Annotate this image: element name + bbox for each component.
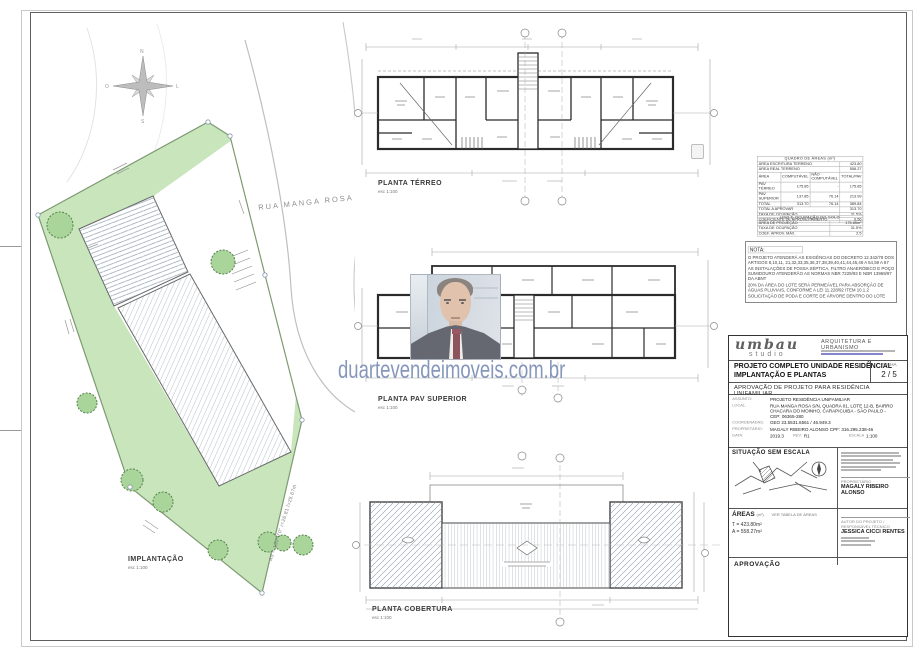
sheet-number-cell: FOLHA 2 / 5 bbox=[870, 361, 907, 382]
approval-line-row: APROVAÇÃO DE PROJETO PARA RESIDÊNCIA UNI… bbox=[729, 383, 907, 395]
watermark-text: duartevendeimoveis.com.br bbox=[338, 356, 565, 385]
table-cell: 137.85 bbox=[781, 192, 810, 202]
field-label: DATA: bbox=[732, 434, 770, 439]
field-label: LOCAL: bbox=[732, 404, 770, 420]
declaration-illegible-text bbox=[841, 452, 910, 472]
table-header: ÁREA bbox=[757, 172, 780, 182]
project-title-row: PROJETO COMPLETO UNIDADE RESIDÊNCIAL IMP… bbox=[729, 361, 907, 383]
approval-stamp-area: APROVAÇÃO bbox=[729, 558, 907, 636]
nota-item: AS INSTALAÇÕES DE FOSSA SÉPTICA, FILTRO … bbox=[748, 267, 897, 282]
field-value: RUA MANGA ROSA S/N, QUADRA 01, LOTE 12-B… bbox=[770, 404, 894, 420]
ground-floor-scale: esc 1:100 bbox=[378, 189, 398, 194]
table-header: COMPUTÁVEL bbox=[781, 172, 810, 182]
author-cell: AUTOR DO PROJETO / RESPONSÁVEL TÉCNICO J… bbox=[837, 509, 913, 565]
table-header: NÃO COMPUTÁVEL bbox=[810, 172, 840, 182]
location-sketch-map bbox=[731, 456, 835, 500]
stair-shaft bbox=[514, 295, 534, 358]
areas-author-row: ÁREAS (m²) VER TABELA DE ÁREAS T = 423.8… bbox=[729, 509, 907, 558]
nota-item: 20% DA ÁREA DO LOTE SERÁ PERMEÁVEL PARA … bbox=[748, 283, 897, 293]
areas-title: ÁREAS bbox=[732, 511, 755, 518]
field-value: MAGALY RIBEIRO ALONSO CPF: 316.295.238-4… bbox=[770, 428, 873, 433]
site-plan-title: IMPLANTAÇÃO bbox=[128, 556, 184, 563]
author-label: AUTOR DO PROJETO / RESPONSÁVEL TÉCNICO bbox=[841, 517, 910, 529]
table-header: TOTAL/PAV bbox=[840, 172, 863, 182]
fields-row: ASSUNTO: PROJETO RESIDÊNCIA UNIFAMILIAR … bbox=[729, 395, 907, 448]
field-label: PROPRIETÁRIO: bbox=[732, 428, 770, 433]
areas-line: A = 558.27m² bbox=[732, 529, 840, 536]
table-cell: 76.14 bbox=[810, 192, 840, 202]
field-label: ASSUNTO: bbox=[732, 398, 770, 403]
nota-item: O PROJETO ATENDERÁ AS EXIGÊNCIAS DO DECR… bbox=[748, 256, 897, 266]
table-cell: PAV SUPERIOR bbox=[757, 192, 780, 202]
soil-use-table: USO E OCUPAÇÃO DO SOLO ÁREA DE PROJEÇÃO … bbox=[757, 215, 863, 235]
scale-label: ESCALA bbox=[849, 434, 864, 439]
upper-floor-title: PLANTA PAV SUPERIOR bbox=[378, 396, 467, 403]
roof-plan-title: PLANTA COBERTURA bbox=[372, 606, 453, 613]
title-block: umbau studio ARQUITETURA E URBANISMO PRO… bbox=[728, 335, 908, 637]
svg-text:N: N bbox=[140, 49, 144, 55]
table-cell: 213.99 bbox=[840, 192, 863, 202]
field-label: COORDENADAS: bbox=[732, 421, 770, 426]
title-block-logo-row: umbau studio ARQUITETURA E URBANISMO bbox=[729, 336, 907, 361]
areas-cell: ÁREAS (m²) VER TABELA DE ÁREAS T = 423.8… bbox=[729, 509, 840, 559]
fold-mark bbox=[0, 430, 21, 431]
roof-middle-slab bbox=[442, 523, 610, 588]
north-compass-icon: NL SO bbox=[105, 49, 179, 125]
nota-title: NOTA: bbox=[748, 246, 803, 253]
nota-box: NOTA: O PROJETO ATENDERÁ AS EXIGÊNCIAS D… bbox=[745, 241, 897, 303]
areas-table: QUADRO DE ÁREAS (m²) ÁREA ESCRITURA TERR… bbox=[757, 156, 863, 212]
approval-title: APROVAÇÃO bbox=[729, 558, 907, 568]
upper-floor-scale: esc 1:100 bbox=[378, 405, 398, 410]
table-cell: - bbox=[810, 182, 840, 192]
firm-address-illegible bbox=[821, 348, 899, 357]
svg-text:L: L bbox=[176, 84, 179, 90]
field-value: 2019.3 bbox=[770, 434, 784, 439]
stair-shaft bbox=[518, 53, 538, 149]
areas-note: VER TABELA DE ÁREAS bbox=[771, 512, 816, 517]
table-cell: 175.85 bbox=[840, 182, 863, 192]
table-cell: PAV TÉRREO bbox=[757, 182, 780, 192]
areas-unit: (m²) bbox=[756, 512, 763, 517]
situacao-row: SITUAÇÃO SEM ESCALA bbox=[729, 448, 907, 509]
table-cell: COEF. APROV. MÁX. bbox=[757, 231, 829, 236]
roof-plan-scale: esc 1:100 bbox=[372, 615, 392, 620]
terrain-contour bbox=[67, 28, 97, 182]
sheet-symbol bbox=[691, 144, 704, 159]
site-plan-scale: esc 1:100 bbox=[128, 565, 148, 570]
owner-label: PROPRIETÁRIO bbox=[841, 477, 910, 484]
field-value: GEO 23.5531.6561 / 46.949.3 bbox=[770, 421, 831, 426]
rev-label: REV: bbox=[793, 434, 802, 439]
table-cell: 2.5 bbox=[830, 231, 863, 236]
nota-item: SOLICITAÇÃO DE PODA E CORTE DE ÁRVORE DE… bbox=[748, 295, 897, 300]
studio-logo-sub: studio bbox=[749, 351, 786, 358]
svg-text:O: O bbox=[105, 84, 109, 90]
sheet-number-label: FOLHA bbox=[871, 362, 907, 367]
author-name: JESSICA CICCI RENTES bbox=[841, 529, 910, 535]
rev-value: R1 bbox=[804, 434, 810, 439]
agent-portrait-photo bbox=[410, 274, 501, 360]
declarations-cell: PROPRIETÁRIO MAGALY RIBEIRO ALONSO bbox=[837, 448, 913, 512]
sheet-number-value: 2 / 5 bbox=[871, 370, 907, 379]
table-cell: 175.85 bbox=[781, 182, 810, 192]
scanned-architectural-sheet: { "watermark": {"text": "duartevendeimov… bbox=[0, 0, 921, 650]
ground-floor-title: PLANTA TÉRREO bbox=[378, 180, 442, 187]
author-registration-illegible bbox=[841, 537, 910, 546]
scale-value: 1:100 bbox=[866, 434, 877, 439]
photo-wash-overlay bbox=[411, 275, 500, 359]
site-plan-drawing: NL SO bbox=[25, 20, 355, 635]
situacao-title: SITUAÇÃO SEM ESCALA bbox=[729, 448, 837, 456]
situacao-cell: SITUAÇÃO SEM ESCALA bbox=[729, 448, 837, 508]
sketch-compass-icon bbox=[812, 462, 826, 476]
fold-mark bbox=[0, 246, 21, 247]
field-value: PROJETO RESIDÊNCIA UNIFAMILIAR bbox=[770, 398, 850, 403]
owner-name: MAGALY RIBEIRO ALONSO bbox=[841, 484, 910, 496]
svg-text:S: S bbox=[141, 119, 145, 125]
